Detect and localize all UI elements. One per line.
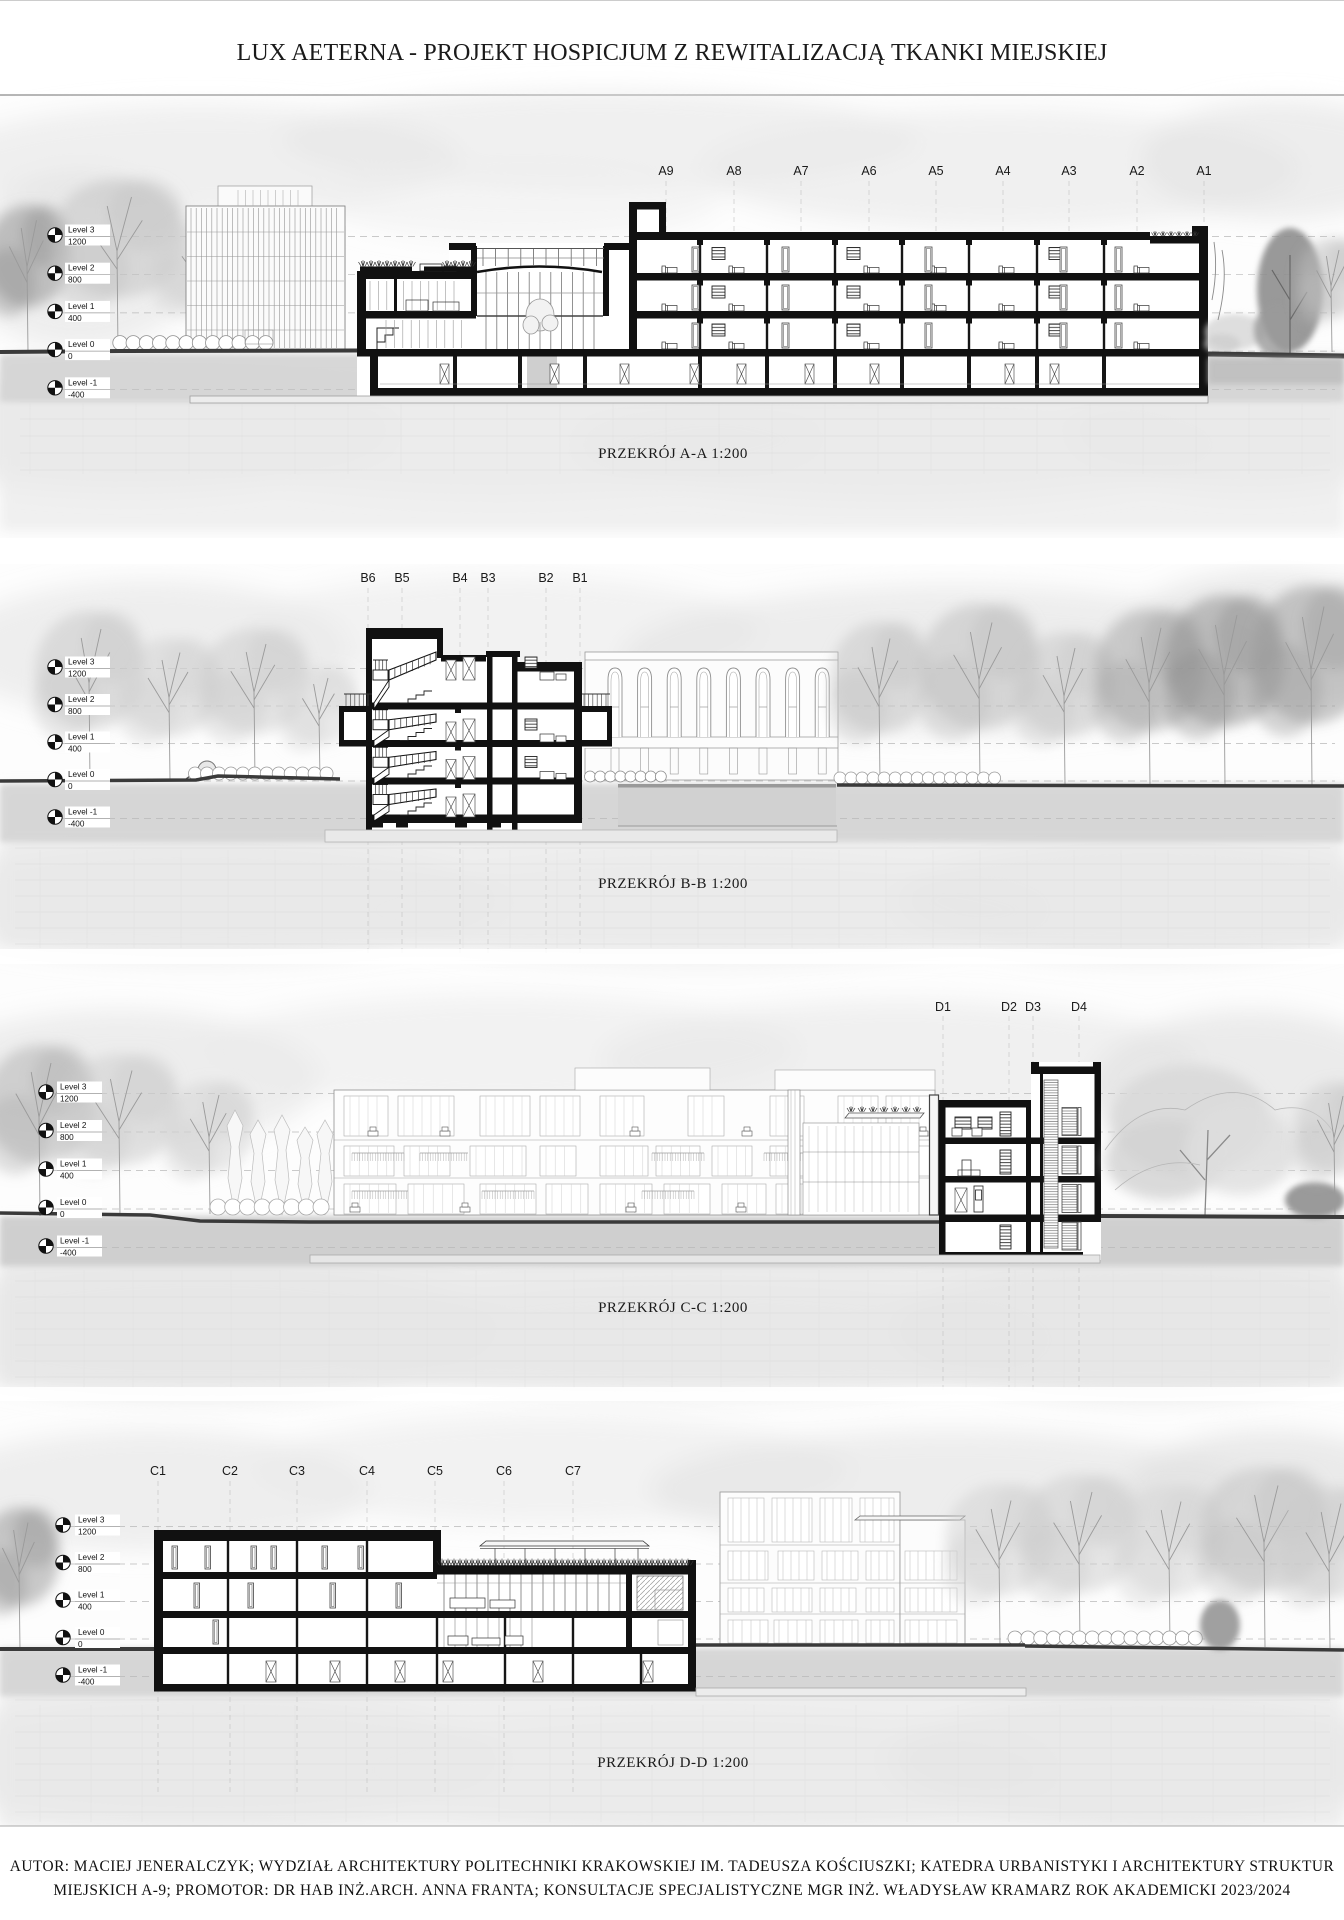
svg-text:A7: A7 — [793, 164, 808, 178]
svg-text:-400: -400 — [68, 820, 85, 829]
svg-text:1200: 1200 — [68, 238, 87, 247]
svg-text:-400: -400 — [60, 1249, 77, 1258]
svg-text:400: 400 — [78, 1603, 92, 1612]
svg-text:Level -1: Level -1 — [78, 1666, 108, 1675]
svg-text:MIEJSKICH A-9; PROMOTOR: DR H: MIEJSKICH A-9; PROMOTOR: DR HAB INŻ.ARCH… — [53, 1882, 1290, 1899]
svg-text:A8: A8 — [726, 164, 741, 178]
svg-text:1200: 1200 — [78, 1528, 97, 1537]
svg-text:AUTOR: MACIEJ JENERALCZYK; WY: AUTOR: MACIEJ JENERALCZYK; WYDZIAŁ ARCHI… — [10, 1858, 1335, 1875]
svg-text:C7: C7 — [565, 1464, 581, 1478]
svg-text:A9: A9 — [658, 164, 673, 178]
svg-text:PRZEKRÓJ C-C 1:200: PRZEKRÓJ C-C 1:200 — [598, 1299, 748, 1316]
svg-text:Level 3: Level 3 — [78, 1516, 105, 1525]
svg-text:800: 800 — [68, 707, 82, 716]
svg-text:D3: D3 — [1025, 1000, 1041, 1014]
svg-text:C6: C6 — [496, 1464, 512, 1478]
svg-text:Level -1: Level -1 — [68, 808, 98, 817]
svg-text:B1: B1 — [572, 571, 587, 585]
svg-text:400: 400 — [68, 314, 82, 323]
svg-text:Level 3: Level 3 — [68, 226, 95, 235]
svg-text:Level 1: Level 1 — [68, 302, 95, 311]
svg-text:Level 1: Level 1 — [68, 733, 95, 742]
svg-text:LUX AETERNA - PROJEKT HOSPICJU: LUX AETERNA - PROJEKT HOSPICJUM Z REWITA… — [237, 40, 1108, 66]
svg-text:Level 2: Level 2 — [68, 695, 95, 704]
svg-text:800: 800 — [68, 276, 82, 285]
svg-text:400: 400 — [60, 1172, 74, 1181]
svg-text:B2: B2 — [538, 571, 553, 585]
svg-text:800: 800 — [60, 1133, 74, 1142]
svg-text:Level 2: Level 2 — [60, 1121, 87, 1130]
svg-text:Level 0: Level 0 — [68, 770, 95, 779]
svg-text:Level 1: Level 1 — [78, 1591, 105, 1600]
svg-text:D2: D2 — [1001, 1000, 1017, 1014]
svg-text:Level 1: Level 1 — [60, 1160, 87, 1169]
svg-text:PRZEKRÓJ A-A 1:200: PRZEKRÓJ A-A 1:200 — [598, 445, 748, 462]
svg-text:800: 800 — [78, 1565, 92, 1574]
svg-text:D4: D4 — [1071, 1000, 1087, 1014]
svg-text:0: 0 — [68, 352, 73, 361]
svg-text:Level 3: Level 3 — [60, 1083, 87, 1092]
svg-text:0: 0 — [68, 782, 73, 791]
svg-text:Level 2: Level 2 — [78, 1553, 105, 1562]
svg-text:A1: A1 — [1196, 164, 1211, 178]
svg-text:0: 0 — [60, 1210, 65, 1219]
svg-text:Level 0: Level 0 — [68, 340, 95, 349]
svg-text:0: 0 — [78, 1640, 83, 1649]
svg-text:A6: A6 — [861, 164, 876, 178]
svg-text:C4: C4 — [359, 1464, 375, 1478]
svg-text:C3: C3 — [289, 1464, 305, 1478]
svg-text:Level 0: Level 0 — [78, 1628, 105, 1637]
svg-text:-400: -400 — [68, 390, 85, 399]
svg-text:D1: D1 — [935, 1000, 951, 1014]
svg-text:A3: A3 — [1061, 164, 1076, 178]
svg-text:1200: 1200 — [60, 1095, 79, 1104]
svg-text:Level -1: Level -1 — [68, 378, 98, 387]
svg-text:1200: 1200 — [68, 670, 87, 679]
svg-text:Level 3: Level 3 — [68, 658, 95, 667]
svg-text:Level 0: Level 0 — [60, 1198, 87, 1207]
svg-text:-400: -400 — [78, 1678, 95, 1687]
svg-text:C1: C1 — [150, 1464, 166, 1478]
svg-text:B4: B4 — [452, 571, 467, 585]
svg-text:B3: B3 — [480, 571, 495, 585]
svg-text:A2: A2 — [1129, 164, 1144, 178]
svg-text:C2: C2 — [222, 1464, 238, 1478]
svg-text:C5: C5 — [427, 1464, 443, 1478]
svg-text:Level 2: Level 2 — [68, 264, 95, 273]
svg-text:A5: A5 — [928, 164, 943, 178]
svg-text:400: 400 — [68, 745, 82, 754]
svg-text:Level -1: Level -1 — [60, 1237, 90, 1246]
svg-text:PRZEKRÓJ D-D 1:200: PRZEKRÓJ D-D 1:200 — [597, 1754, 749, 1771]
svg-text:PRZEKRÓJ B-B 1:200: PRZEKRÓJ B-B 1:200 — [598, 875, 748, 892]
svg-text:A4: A4 — [995, 164, 1010, 178]
svg-text:B5: B5 — [394, 571, 409, 585]
svg-text:B6: B6 — [360, 571, 375, 585]
